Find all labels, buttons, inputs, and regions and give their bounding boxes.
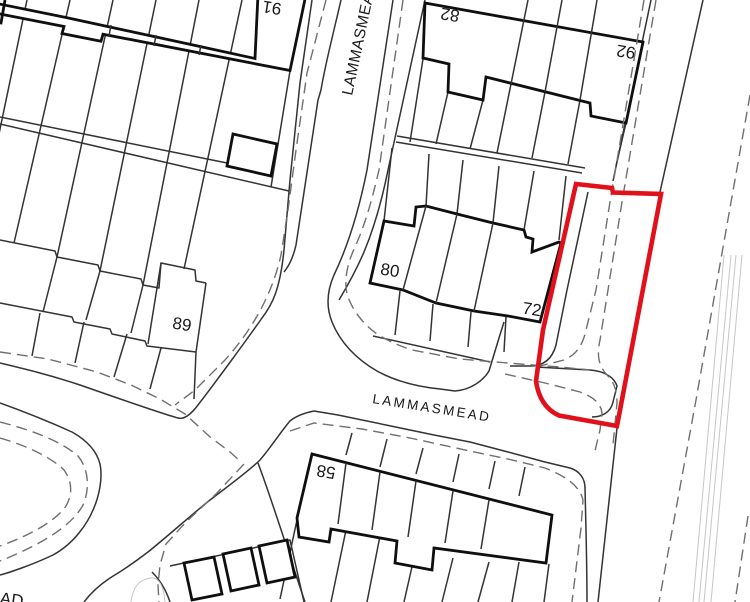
svg-text:58: 58 bbox=[315, 461, 337, 483]
svg-text:92: 92 bbox=[615, 41, 637, 63]
svg-text:91: 91 bbox=[261, 0, 283, 18]
svg-text:82: 82 bbox=[439, 4, 461, 26]
svg-text:80: 80 bbox=[379, 260, 401, 282]
svg-text:89: 89 bbox=[171, 314, 193, 336]
svg-text:72: 72 bbox=[521, 299, 543, 321]
